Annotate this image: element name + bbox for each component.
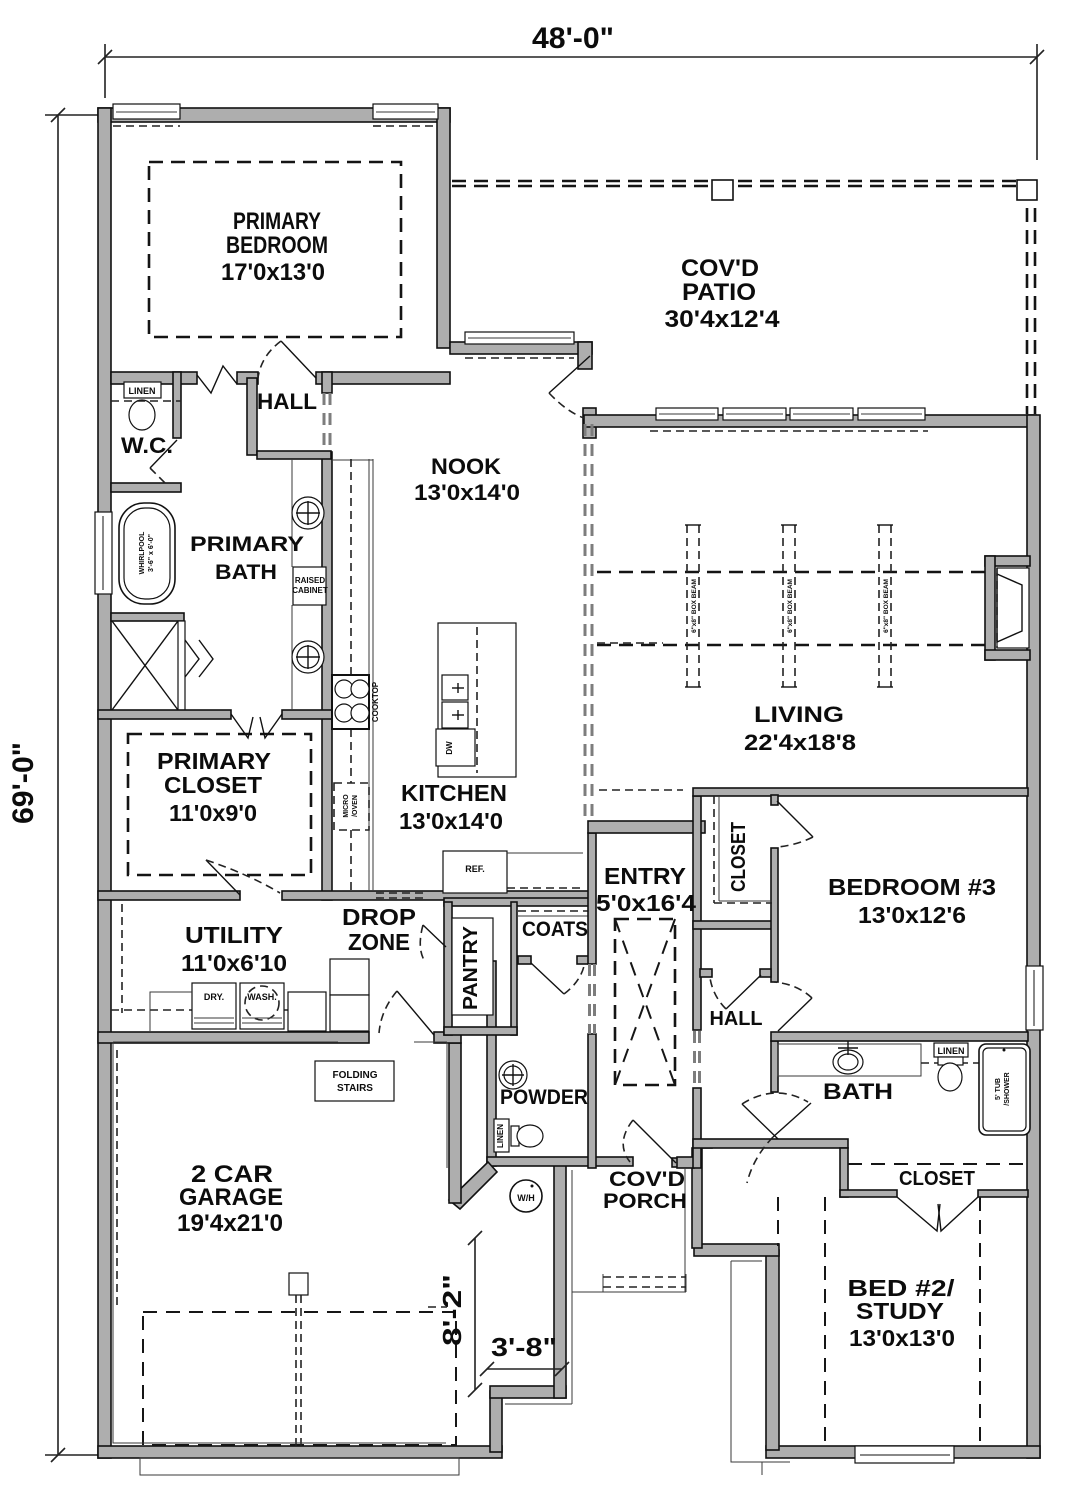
svg-text:RAISED: RAISED	[295, 576, 325, 585]
svg-text:CLOSET: CLOSET	[728, 822, 750, 892]
svg-text:13'0x14'0: 13'0x14'0	[414, 480, 520, 505]
svg-text:KITCHEN: KITCHEN	[401, 780, 507, 806]
svg-text:BEDROOM: BEDROOM	[226, 232, 328, 259]
svg-text:11'0x9'0: 11'0x9'0	[169, 800, 257, 826]
svg-text:PRIMARY: PRIMARY	[157, 748, 271, 774]
svg-text:NOOK: NOOK	[431, 454, 501, 479]
svg-text:LINEN: LINEN	[938, 1046, 965, 1056]
svg-text:48'-0": 48'-0"	[532, 22, 614, 55]
svg-text:W.C.: W.C.	[121, 433, 173, 458]
svg-text:COV'D: COV'D	[609, 1168, 685, 1191]
svg-text:HALL: HALL	[257, 389, 317, 414]
svg-text:UTILITY: UTILITY	[185, 922, 283, 948]
svg-text:DRY.: DRY.	[204, 992, 224, 1002]
svg-text:/OVEN: /OVEN	[352, 795, 359, 817]
svg-text:COV'D: COV'D	[681, 255, 759, 282]
svg-text:CLOSET: CLOSET	[164, 772, 262, 798]
svg-text:REF.: REF.	[465, 864, 485, 874]
svg-text:6"x8" BOX BEAM: 6"x8" BOX BEAM	[691, 579, 698, 633]
svg-text:PATIO: PATIO	[682, 279, 756, 306]
svg-text:8'-2": 8'-2"	[437, 1274, 467, 1346]
svg-text:ZONE: ZONE	[348, 929, 410, 955]
svg-text:CABINET: CABINET	[292, 586, 328, 595]
svg-text:FOLDING: FOLDING	[333, 1070, 378, 1081]
svg-text:BEDROOM #3: BEDROOM #3	[828, 874, 996, 900]
svg-text:13'0x12'6: 13'0x12'6	[858, 902, 966, 928]
svg-text:GARAGE: GARAGE	[179, 1184, 283, 1211]
svg-text:LINEN: LINEN	[496, 1124, 505, 1148]
svg-text:5'0x16'4: 5'0x16'4	[596, 890, 696, 916]
svg-text:6"x8" BOX BEAM: 6"x8" BOX BEAM	[883, 579, 890, 633]
svg-text:13'0x13'0: 13'0x13'0	[849, 1325, 955, 1351]
svg-text:PRIMARY: PRIMARY	[233, 208, 321, 235]
svg-text:3'-6" x 6'-0": 3'-6" x 6'-0"	[148, 534, 155, 572]
svg-text:30'4x12'4: 30'4x12'4	[665, 306, 781, 333]
svg-text:DROP: DROP	[342, 904, 416, 930]
svg-text:BATH: BATH	[215, 561, 277, 584]
svg-text:PORCH: PORCH	[603, 1190, 687, 1213]
svg-text:MICRO: MICRO	[343, 794, 350, 818]
svg-text:WASH.: WASH.	[247, 992, 277, 1002]
svg-text:13'0x14'0: 13'0x14'0	[399, 808, 503, 834]
svg-text:PRIMARY: PRIMARY	[190, 533, 304, 556]
svg-text:W/H: W/H	[517, 1193, 535, 1203]
svg-text:ENTRY: ENTRY	[604, 863, 686, 889]
svg-text:DW: DW	[445, 741, 454, 755]
svg-text:STAIRS: STAIRS	[337, 1083, 373, 1094]
svg-text:COATS: COATS	[522, 918, 588, 941]
svg-text:6"x8" BOX BEAM: 6"x8" BOX BEAM	[787, 579, 794, 633]
svg-text:11'0x6'10: 11'0x6'10	[181, 950, 287, 976]
svg-text:/SHOWER: /SHOWER	[1004, 1072, 1011, 1105]
svg-text:LIVING: LIVING	[754, 702, 844, 727]
svg-text:CLOSET: CLOSET	[899, 1168, 975, 1190]
svg-text:5' TUB: 5' TUB	[995, 1078, 1002, 1100]
svg-text:COOKTOP: COOKTOP	[371, 681, 380, 722]
svg-text:LINEN: LINEN	[129, 386, 156, 396]
svg-text:19'4x21'0: 19'4x21'0	[177, 1210, 283, 1237]
svg-text:STUDY: STUDY	[856, 1298, 944, 1324]
svg-text:PANTRY: PANTRY	[460, 925, 482, 1010]
svg-text:17'0x13'0: 17'0x13'0	[221, 259, 325, 286]
svg-text:69'-0": 69'-0"	[7, 742, 40, 824]
svg-text:BATH: BATH	[823, 1079, 893, 1104]
svg-text:22'4x18'8: 22'4x18'8	[744, 730, 856, 755]
svg-text:HALL: HALL	[710, 1008, 763, 1030]
svg-text:3'-8": 3'-8"	[491, 1332, 557, 1362]
svg-text:POWDER: POWDER	[500, 1086, 588, 1109]
svg-text:WHIRLPOOL: WHIRLPOOL	[139, 531, 146, 574]
